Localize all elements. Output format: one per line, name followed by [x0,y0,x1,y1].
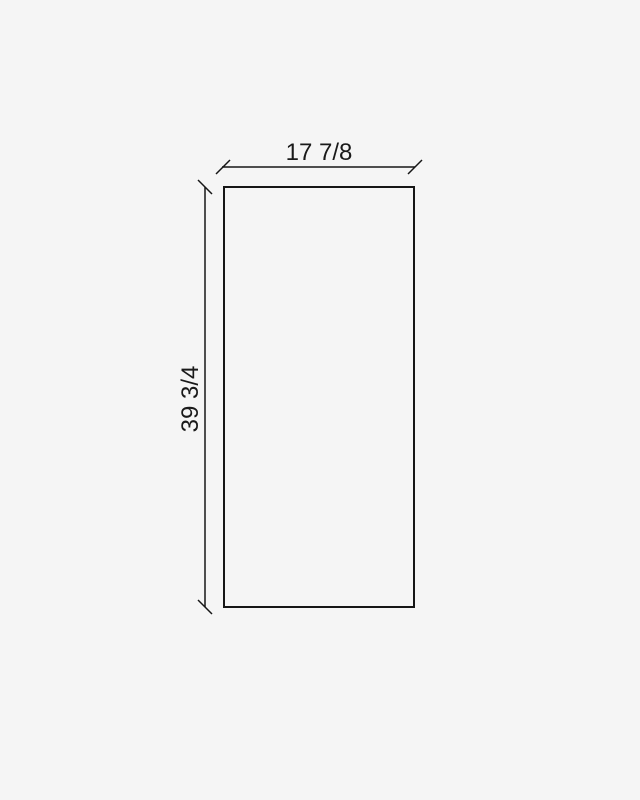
height-dimension-label: 39 3/4 [179,366,203,433]
panel-outline [224,187,414,607]
diagram-canvas: 17 7/8 39 3/4 [0,0,640,800]
dimension-drawing [0,0,640,800]
width-dimension-label: 17 7/8 [224,141,414,165]
